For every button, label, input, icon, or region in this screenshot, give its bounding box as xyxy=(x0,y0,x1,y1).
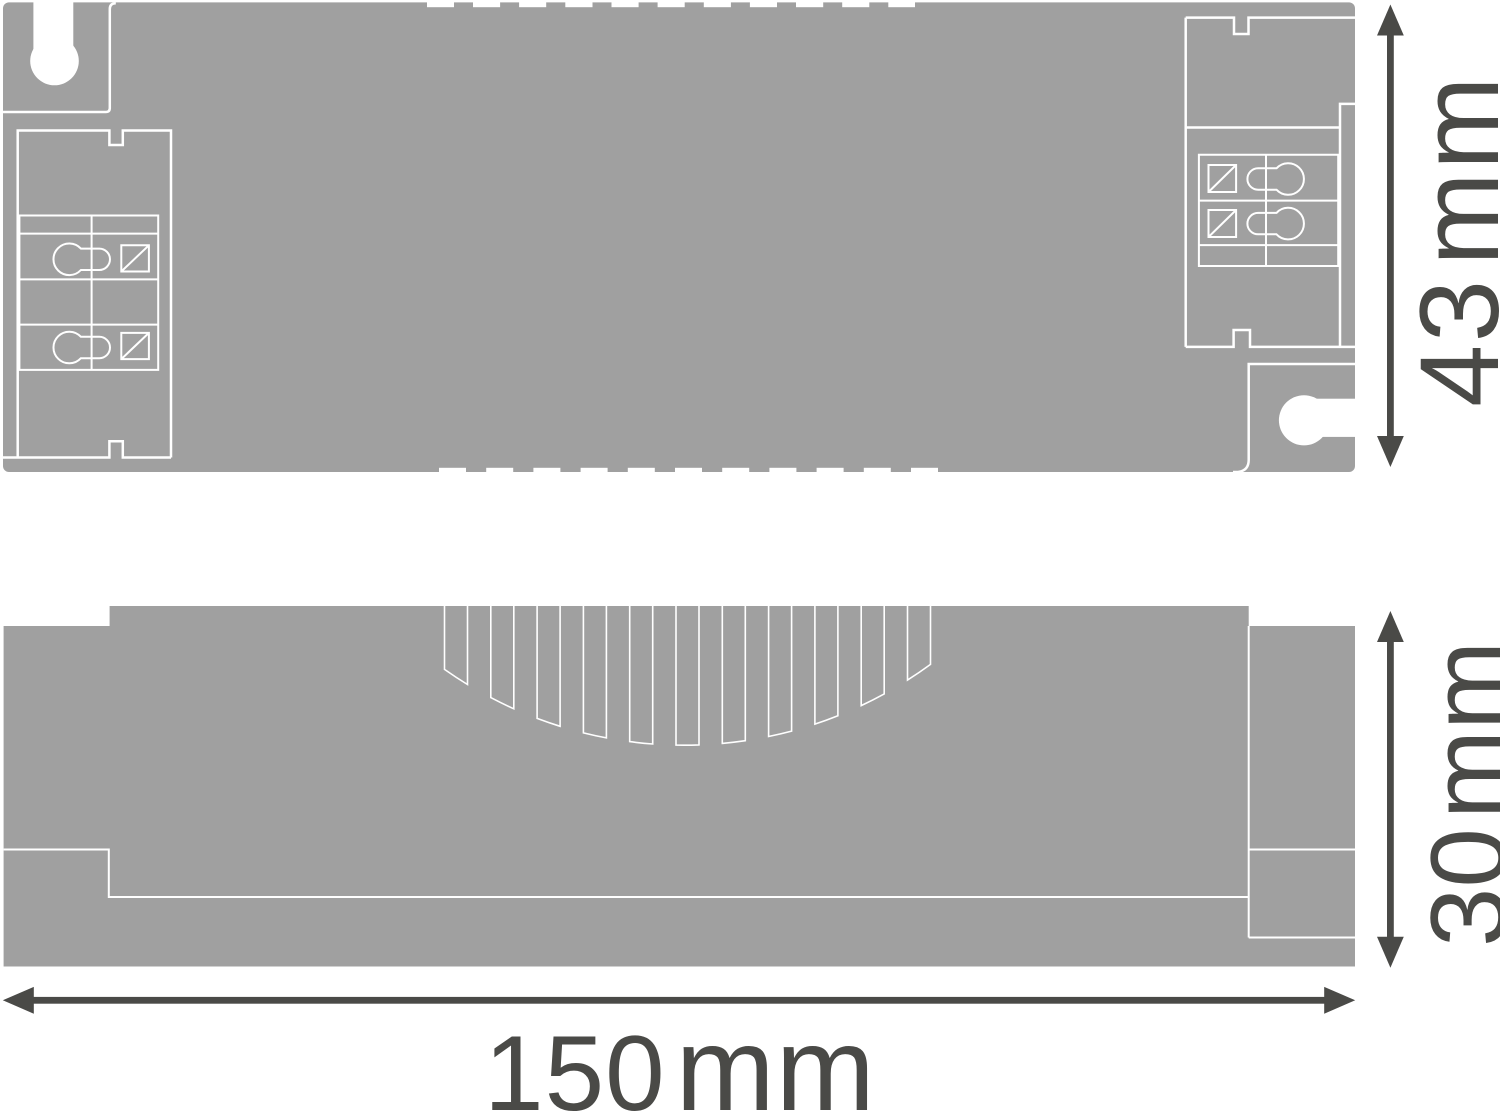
svg-text:43 mm: 43 mm xyxy=(1397,74,1500,407)
svg-text:30 mm: 30 mm xyxy=(1408,641,1500,947)
svg-text:150 mm: 150 mm xyxy=(484,1003,876,1113)
